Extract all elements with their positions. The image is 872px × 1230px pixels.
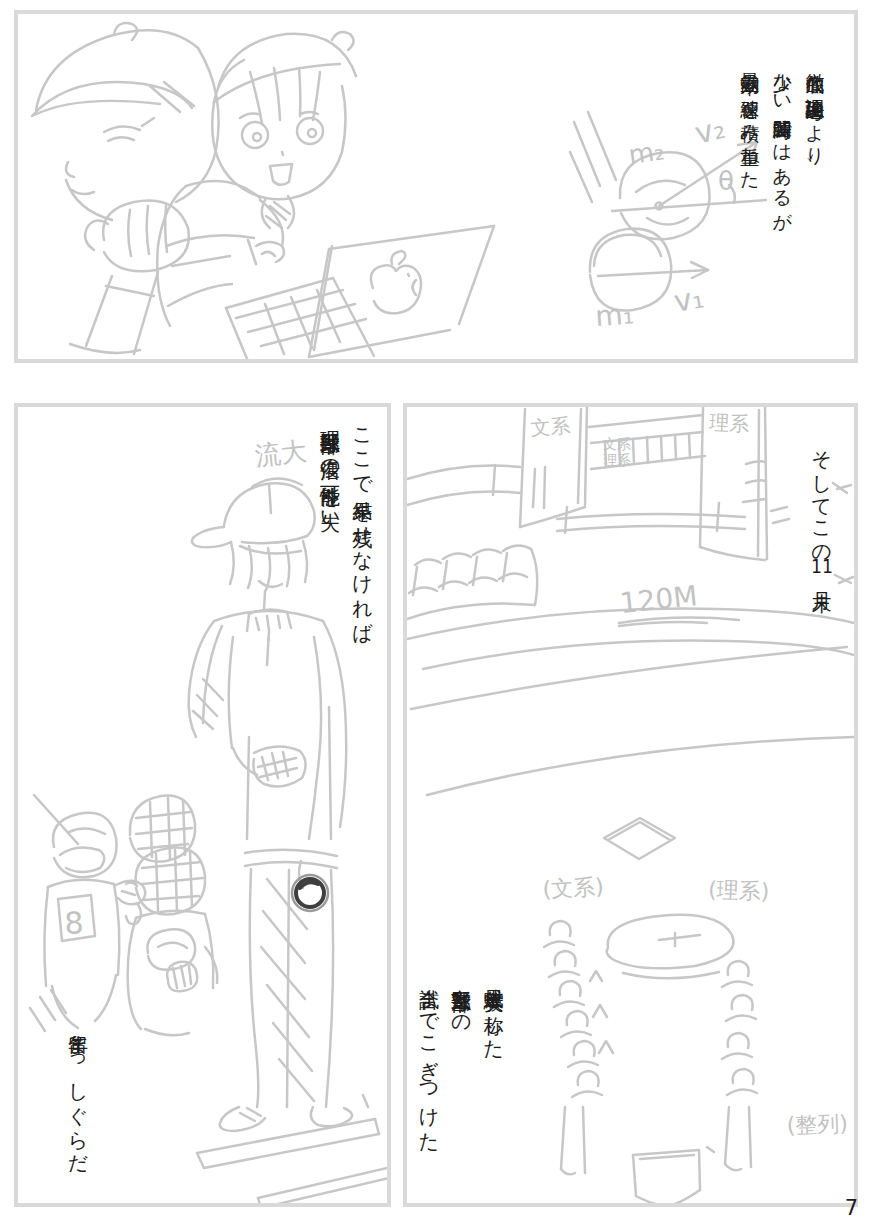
caption-line: 少ない練習時間ではあるが <box>767 58 800 222</box>
team-left-label: (文系) <box>542 874 604 902</box>
cap-team-label: 流大 <box>253 436 308 471</box>
panel2-caption-bottom: 留年まっしぐらだ <box>62 1019 94 1164</box>
field-sketch: 120M <box>407 483 854 795</box>
bat-icon <box>34 795 78 844</box>
caption-line: 最高効率の練習を積み重ねた <box>734 58 767 222</box>
caption-part: そしてこの <box>810 437 834 556</box>
base-diamond-sketch: (文系) (理系) <box>542 818 770 904</box>
caption-part: 月末 <box>810 576 834 578</box>
bridge-upper-label: 文系 <box>603 436 631 452</box>
campus-buildings-sketch: 文系 文系 理系 理系 <box>407 407 789 619</box>
page-number: 7 <box>845 1196 858 1220</box>
building-right-label: 理系 <box>709 410 750 436</box>
panel2-caption-top: ここで結果を残せなければ 理系野球部は復活の可能性を失い <box>314 415 379 632</box>
mass1-label: m₁ <box>594 297 635 333</box>
velocity2-label: v₂ <box>691 110 728 151</box>
panel-bottom-right: 文系 文系 理系 理系 <box>403 403 858 1207</box>
catchers-sketch <box>128 796 218 1036</box>
caption-line: 徹底的な論理的思考により、 <box>799 58 832 222</box>
mound-icon <box>607 915 734 968</box>
jersey-number-label: 8 <box>64 905 85 941</box>
caption-line: ここで結果を残せなければ <box>347 415 379 632</box>
velocity1-label: v₁ <box>671 279 706 319</box>
panel1-sketch: m₂ v₂ θ m₁ v₁ <box>18 14 854 359</box>
caption-part-number: 11 <box>810 556 834 576</box>
manga-page: m₂ v₂ θ m₁ v₁ 徹底的な論理的思考により、 少ない練習時間ではあるが… <box>0 0 872 1230</box>
distance-label: 120M <box>618 579 699 620</box>
panel-bottom-left: 流大 <box>14 403 391 1207</box>
laptop-sketch <box>168 226 494 359</box>
caption-line: 文系野球部との <box>445 973 477 1142</box>
panel3-caption-top: そしてこの11月末 <box>806 437 838 578</box>
lineup-label: (整列) <box>786 1111 848 1138</box>
mass2-label: m₂ <box>627 135 667 170</box>
building-left-label: 文系 <box>530 413 572 440</box>
caption-line: 留年まっしぐらだ <box>62 1019 94 1164</box>
panel-top: m₂ v₂ θ m₁ v₁ 徹底的な論理的思考により、 少ない練習時間ではあるが… <box>14 10 858 363</box>
panel1-caption: 徹底的な論理的思考により、 少ない練習時間ではあるが 最高効率の練習を積み重ねた <box>734 58 832 222</box>
lineup-overhead-sketch: (整列) <box>544 915 848 1203</box>
caption-line: 理系野球部は復活の可能性を失い <box>314 415 346 632</box>
caption-line: 成果実験と称した <box>478 973 510 1142</box>
team-right-label: (理系) <box>708 877 770 904</box>
thinking-boy-sketch <box>32 23 219 354</box>
panel3-caption-bottom: 成果実験と称した 文系野球部との 試合までこぎつけた <box>413 973 510 1142</box>
theta-label: θ <box>718 166 734 196</box>
caption-line: そしてこの11月末 <box>806 437 838 578</box>
caption-line: 試合までこぎつけた <box>413 973 445 1142</box>
bridge-lower-label: 理系 <box>603 452 631 468</box>
